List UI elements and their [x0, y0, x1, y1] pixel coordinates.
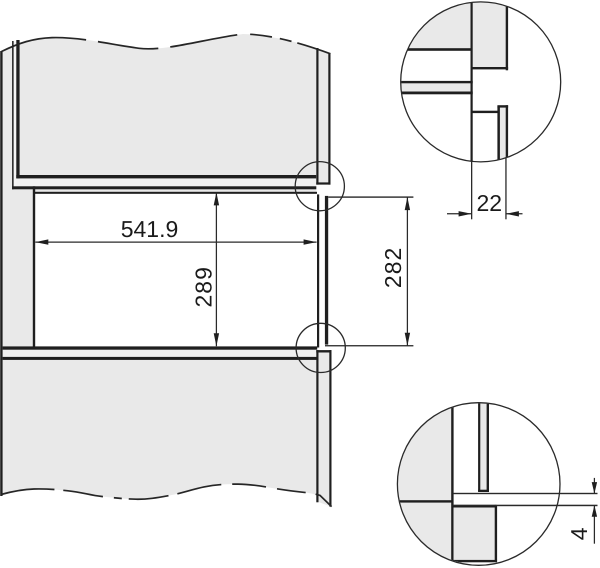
svg-text:289: 289	[191, 266, 217, 307]
svg-text:22: 22	[477, 190, 503, 216]
svg-text:541.9: 541.9	[121, 216, 179, 242]
svg-text:282: 282	[380, 247, 406, 288]
svg-text:4: 4	[566, 527, 592, 540]
